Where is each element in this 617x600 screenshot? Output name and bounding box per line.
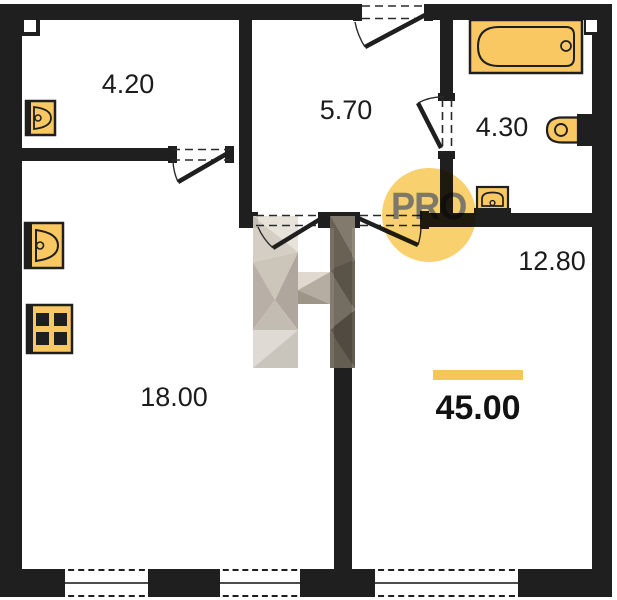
total-area-label: 45.00 bbox=[418, 389, 538, 428]
stove-icon bbox=[26, 304, 72, 354]
kitchen-sink-icon bbox=[24, 222, 63, 269]
room-area-label: 4.30 bbox=[452, 113, 552, 141]
room-area-label: 5.70 bbox=[296, 96, 396, 124]
total-area-accent-bar bbox=[433, 370, 523, 380]
room-area-label: 4.20 bbox=[78, 70, 178, 98]
bathtub-icon bbox=[470, 20, 582, 73]
floor-plan: PRO 4.20 5.70 4.30 12.80 18.00 45.00 bbox=[0, 0, 617, 600]
room-area-label: 12.80 bbox=[502, 247, 602, 275]
pro-badge-text: PRO bbox=[391, 186, 466, 229]
toilet-icon bbox=[547, 114, 594, 146]
pro-watermark-badge: PRO bbox=[382, 168, 476, 262]
sink-icon bbox=[25, 100, 55, 136]
room-area-label: 18.00 bbox=[124, 383, 224, 411]
washbasin-icon bbox=[474, 187, 511, 214]
